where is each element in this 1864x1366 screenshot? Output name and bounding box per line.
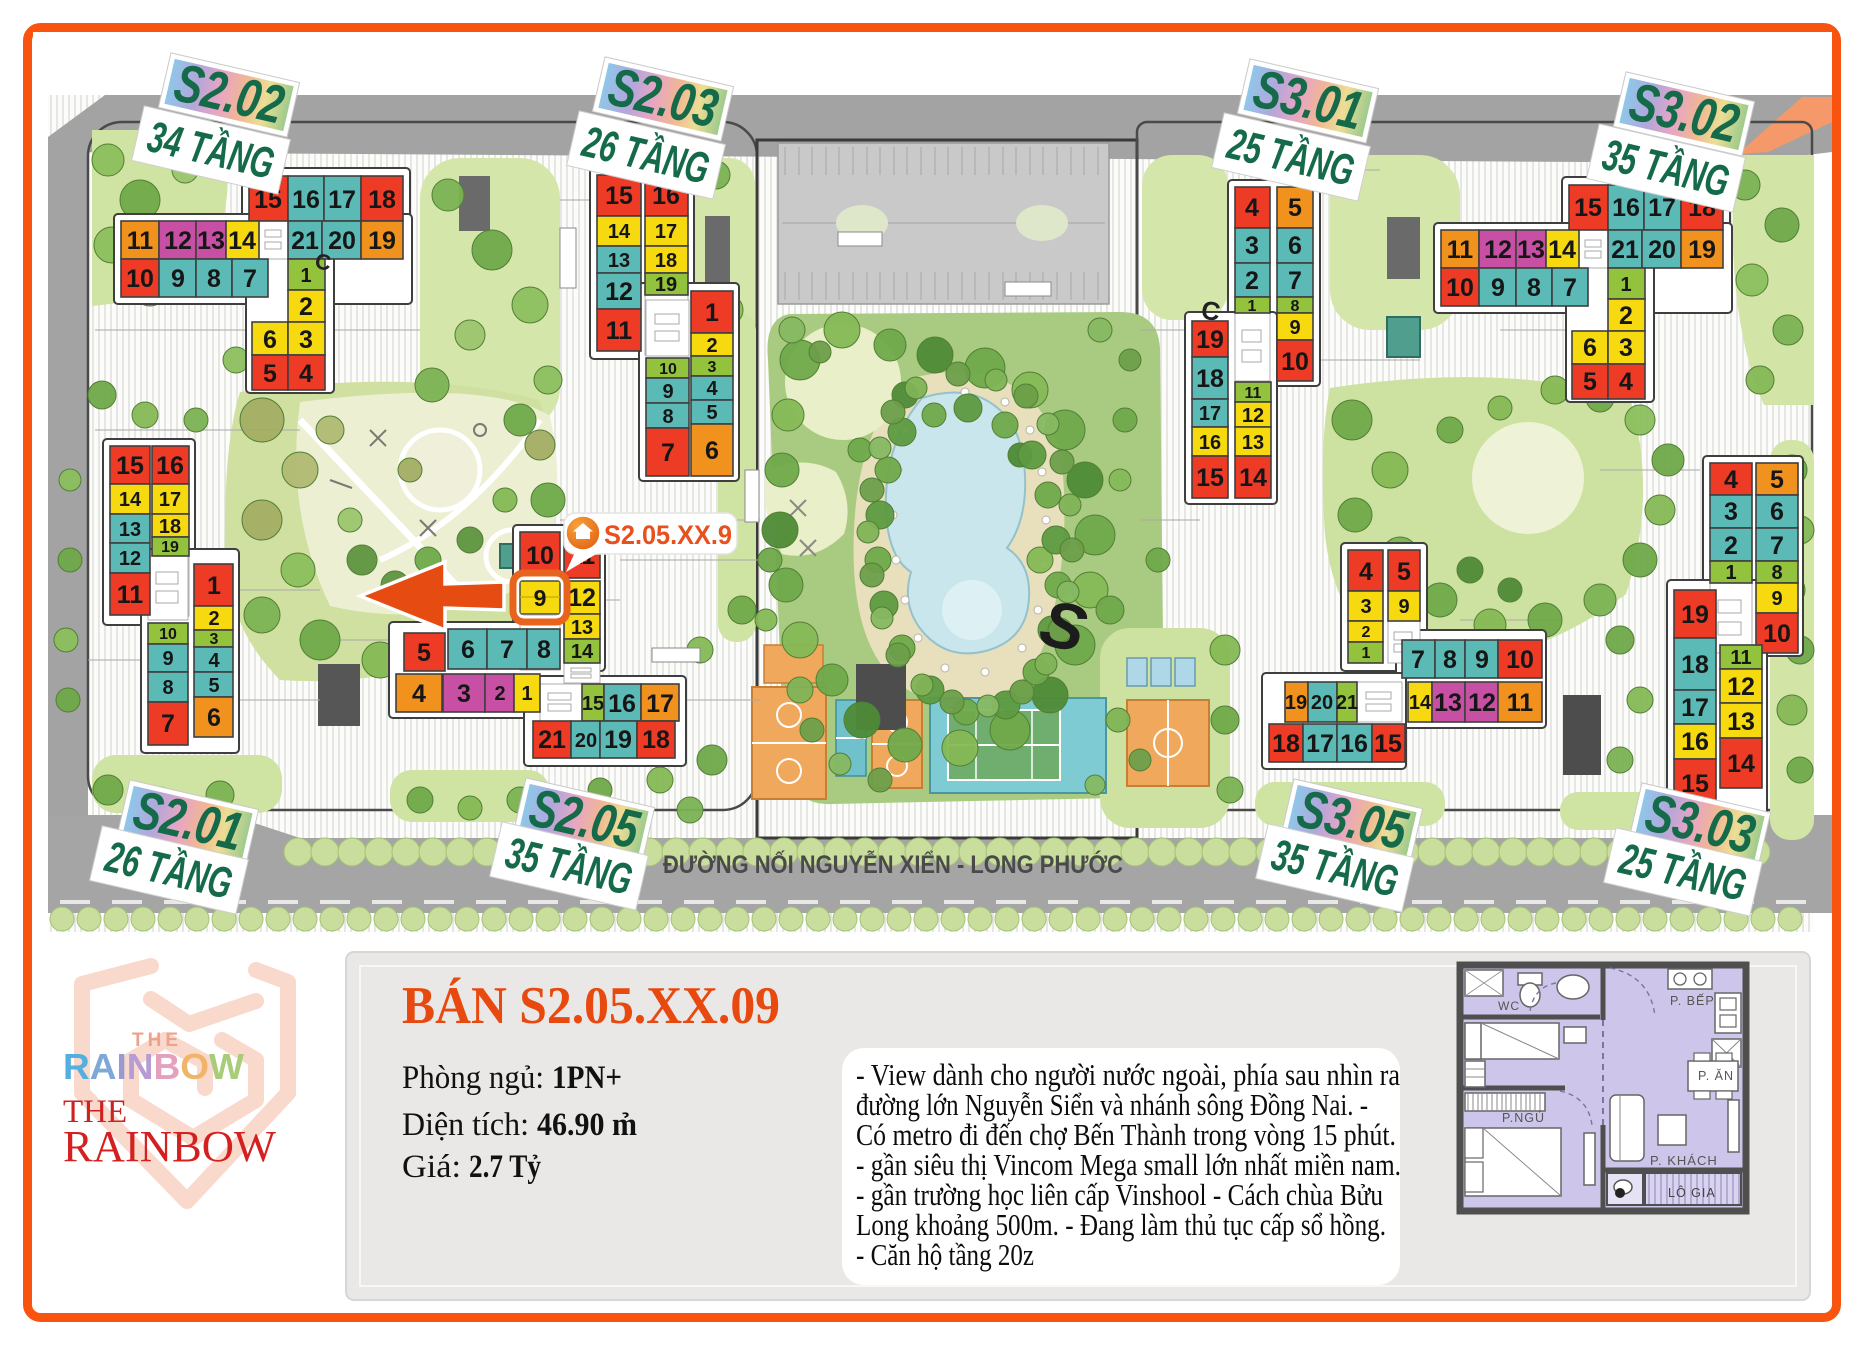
svg-text:16: 16 (608, 690, 636, 718)
svg-text:4: 4 (1724, 466, 1738, 494)
svg-text:2: 2 (1362, 624, 1371, 641)
svg-text:8: 8 (1527, 274, 1541, 302)
svg-text:8: 8 (1771, 562, 1782, 584)
svg-text:6: 6 (1770, 498, 1784, 526)
svg-text:5: 5 (208, 675, 219, 697)
svg-text:1: 1 (705, 299, 719, 327)
svg-text:6: 6 (263, 326, 277, 354)
svg-text:2: 2 (706, 335, 717, 357)
svg-text:P. KHÁCH: P. KHÁCH (1650, 1153, 1718, 1168)
svg-text:9: 9 (1771, 588, 1782, 610)
svg-text:ĐƯỜNG NỐI NGUYỄN XIỂN - LONG P: ĐƯỜNG NỐI NGUYỄN XIỂN - LONG PHƯỚC (663, 849, 1123, 879)
svg-text:21: 21 (1611, 236, 1639, 264)
svg-text:16: 16 (1681, 728, 1709, 756)
svg-text:6: 6 (1583, 334, 1597, 362)
svg-text:RAINBOW: RAINBOW (63, 1122, 276, 1171)
svg-text:13: 13 (571, 617, 593, 639)
svg-text:19: 19 (655, 274, 677, 296)
svg-text:7: 7 (1288, 267, 1302, 295)
svg-text:18: 18 (655, 250, 677, 272)
svg-text:19: 19 (1285, 692, 1307, 714)
svg-text:8: 8 (662, 406, 673, 428)
svg-text:15: 15 (582, 693, 604, 715)
svg-text:Phòng ngủ:: Phòng ngủ: (402, 1060, 544, 1096)
svg-text:10: 10 (1446, 274, 1474, 302)
svg-text:1: 1 (521, 683, 532, 705)
svg-text:3: 3 (210, 631, 219, 648)
svg-text:15: 15 (1196, 464, 1224, 492)
svg-text:17: 17 (646, 690, 674, 718)
svg-text:7: 7 (1411, 646, 1425, 674)
svg-text:17: 17 (1199, 403, 1221, 425)
svg-text:19: 19 (1196, 326, 1224, 354)
svg-text:3: 3 (1245, 232, 1259, 260)
svg-text:20: 20 (575, 730, 597, 752)
svg-text:2: 2 (494, 683, 505, 705)
svg-text:9: 9 (534, 585, 547, 611)
svg-text:5: 5 (1770, 466, 1784, 494)
svg-text:P.NGỦ: P.NGỦ (1502, 1110, 1545, 1125)
svg-text:1: 1 (1620, 274, 1631, 296)
svg-text:8: 8 (537, 636, 551, 664)
svg-text:18: 18 (642, 726, 670, 754)
svg-text:1PN+: 1PN+ (552, 1060, 622, 1096)
svg-text:13: 13 (1434, 689, 1462, 717)
svg-text:16: 16 (1199, 432, 1221, 454)
svg-text:15: 15 (116, 452, 144, 480)
svg-text:21: 21 (291, 227, 319, 255)
svg-text:5: 5 (706, 402, 717, 424)
svg-text:LÔ GIA: LÔ GIA (1668, 1185, 1716, 1200)
svg-text:2: 2 (208, 608, 219, 630)
svg-text:11: 11 (117, 581, 144, 609)
svg-text:20: 20 (1648, 236, 1676, 264)
svg-text:13: 13 (197, 227, 225, 255)
svg-text:12: 12 (568, 584, 596, 612)
svg-text:13: 13 (608, 250, 630, 272)
svg-text:6: 6 (207, 704, 221, 732)
svg-text:3: 3 (1619, 334, 1633, 362)
svg-text:9: 9 (1289, 317, 1300, 339)
svg-text:2: 2 (1619, 302, 1633, 330)
svg-text:WC: WC (1498, 999, 1520, 1013)
svg-text:BÁN S2.05.XX.09: BÁN S2.05.XX.09 (402, 977, 780, 1035)
svg-text:- Căn hộ tầng 20z: - Căn hộ tầng 20z (856, 1237, 1034, 1272)
svg-text:10: 10 (1763, 620, 1791, 648)
svg-text:7: 7 (661, 439, 675, 467)
svg-text:7: 7 (243, 265, 257, 293)
svg-text:RAINBOW: RAINBOW (63, 1046, 244, 1087)
svg-text:1: 1 (1248, 298, 1257, 315)
svg-text:19: 19 (604, 726, 632, 754)
svg-text:7: 7 (161, 710, 175, 738)
svg-text:9: 9 (1491, 274, 1505, 302)
svg-text:17: 17 (159, 489, 181, 511)
svg-text:4: 4 (706, 378, 718, 400)
svg-text:10: 10 (159, 626, 177, 643)
svg-text:19: 19 (1688, 236, 1716, 264)
svg-text:4: 4 (412, 680, 426, 708)
svg-text:11: 11 (1730, 647, 1751, 669)
svg-text:21: 21 (538, 726, 566, 754)
svg-text:4: 4 (1359, 558, 1373, 586)
svg-text:18: 18 (368, 186, 396, 214)
svg-text:1: 1 (1362, 645, 1371, 662)
svg-text:Diện tích:: Diện tích: (402, 1107, 529, 1143)
svg-text:8: 8 (162, 677, 173, 699)
svg-text:4: 4 (1245, 194, 1259, 222)
svg-text:P. ĂN: P. ĂN (1698, 1068, 1734, 1083)
svg-text:14: 14 (1548, 236, 1576, 264)
svg-text:5: 5 (417, 639, 431, 667)
svg-text:12: 12 (1484, 236, 1512, 264)
svg-text:6: 6 (1288, 232, 1302, 260)
svg-text:15: 15 (605, 182, 633, 210)
svg-text:16: 16 (1340, 730, 1368, 758)
svg-text:12: 12 (1468, 689, 1496, 717)
svg-text:3: 3 (1360, 596, 1371, 618)
svg-text:2: 2 (1245, 267, 1259, 295)
svg-text:10: 10 (1281, 348, 1309, 376)
svg-text:16: 16 (156, 452, 184, 480)
svg-text:1: 1 (300, 265, 311, 287)
svg-text:5: 5 (1397, 558, 1411, 586)
svg-text:12: 12 (1242, 405, 1264, 427)
svg-text:1: 1 (1725, 562, 1736, 584)
svg-text:4: 4 (1619, 368, 1633, 396)
svg-text:17: 17 (1681, 694, 1709, 722)
svg-text:14: 14 (608, 221, 631, 243)
svg-text:17: 17 (1306, 730, 1334, 758)
svg-text:12: 12 (605, 278, 633, 306)
svg-text:12: 12 (164, 227, 192, 255)
svg-text:46.90 m̉: 46.90 m̉ (537, 1107, 637, 1143)
svg-text:9: 9 (1398, 596, 1409, 618)
svg-text:18: 18 (1196, 365, 1224, 393)
svg-text:9: 9 (1475, 646, 1489, 674)
svg-text:S2.05.XX.9: S2.05.XX.9 (604, 520, 732, 550)
svg-text:14: 14 (1727, 750, 1755, 778)
svg-text:19: 19 (368, 227, 396, 255)
svg-text:17: 17 (655, 221, 677, 243)
svg-text:8: 8 (1443, 646, 1457, 674)
svg-text:3: 3 (457, 680, 471, 708)
svg-text:13: 13 (119, 519, 141, 541)
svg-text:11: 11 (1447, 236, 1474, 264)
svg-text:2: 2 (1724, 532, 1738, 560)
svg-text:14: 14 (571, 641, 594, 663)
svg-text:4: 4 (208, 650, 220, 672)
svg-text:14: 14 (228, 227, 256, 255)
svg-text:16: 16 (1612, 194, 1640, 222)
svg-text:1: 1 (207, 572, 221, 600)
svg-text:3: 3 (1724, 498, 1738, 526)
svg-text:20: 20 (1311, 692, 1333, 714)
svg-text:4: 4 (299, 360, 313, 388)
svg-text:13: 13 (1727, 708, 1755, 736)
svg-text:14: 14 (1409, 692, 1432, 714)
svg-text:11: 11 (1245, 385, 1262, 402)
svg-text:10: 10 (1506, 646, 1534, 674)
svg-text:Giá:: Giá: (402, 1149, 461, 1185)
svg-text:14: 14 (1239, 464, 1267, 492)
svg-text:21: 21 (1336, 692, 1358, 714)
svg-text:19: 19 (1681, 601, 1709, 629)
svg-text:10: 10 (526, 542, 554, 570)
svg-text:9: 9 (171, 265, 185, 293)
svg-text:10: 10 (126, 265, 154, 293)
svg-text:12: 12 (119, 548, 141, 570)
svg-text:P. BẾP: P. BẾP (1670, 993, 1715, 1008)
svg-text:6: 6 (461, 636, 475, 664)
svg-text:5: 5 (263, 360, 277, 388)
svg-text:17: 17 (328, 186, 356, 214)
svg-text:16: 16 (292, 186, 320, 214)
svg-text:13: 13 (1517, 236, 1545, 264)
svg-text:19: 19 (161, 539, 179, 556)
svg-text:11: 11 (127, 227, 154, 255)
svg-text:3: 3 (299, 326, 313, 354)
svg-text:7: 7 (1770, 532, 1784, 560)
svg-text:12: 12 (1727, 673, 1755, 701)
svg-text:9: 9 (662, 381, 673, 403)
svg-text:5: 5 (1583, 368, 1597, 396)
svg-text:5: 5 (1288, 194, 1302, 222)
svg-text:14: 14 (119, 489, 142, 511)
svg-text:11: 11 (606, 317, 633, 345)
svg-text:9: 9 (162, 648, 173, 670)
svg-text:7: 7 (500, 636, 514, 664)
svg-text:6: 6 (705, 437, 719, 465)
svg-text:18: 18 (1272, 730, 1300, 758)
svg-text:10: 10 (659, 361, 677, 378)
svg-text:11: 11 (1507, 689, 1534, 717)
svg-text:18: 18 (159, 516, 181, 538)
svg-text:3: 3 (708, 359, 717, 376)
svg-text:13: 13 (1242, 432, 1264, 454)
svg-text:15: 15 (1374, 730, 1402, 758)
svg-text:7: 7 (1563, 274, 1577, 302)
svg-text:2: 2 (299, 293, 313, 321)
svg-text:15: 15 (1574, 194, 1602, 222)
svg-text:8: 8 (207, 265, 221, 293)
svg-text:18: 18 (1681, 651, 1709, 679)
svg-text:2.7 Tỷ: 2.7 Tỷ (469, 1149, 541, 1185)
